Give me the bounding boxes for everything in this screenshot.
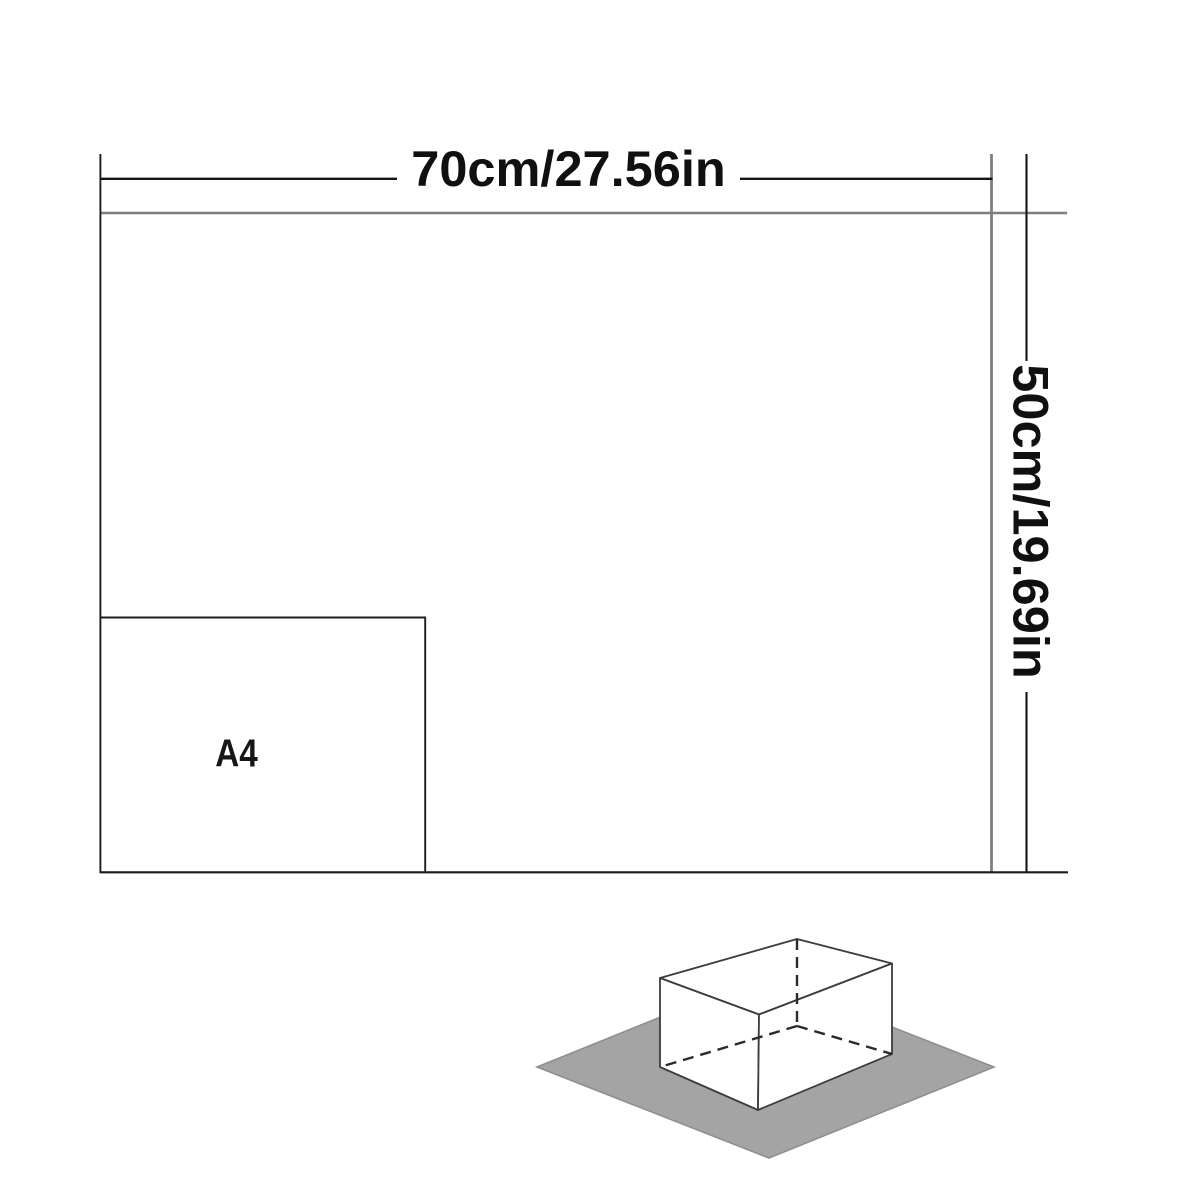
svg-text:70cm/27.56in: 70cm/27.56in: [411, 140, 725, 197]
svg-text:50cm/19.69in: 50cm/19.69in: [1003, 364, 1060, 678]
svg-text:A4: A4: [215, 733, 258, 776]
